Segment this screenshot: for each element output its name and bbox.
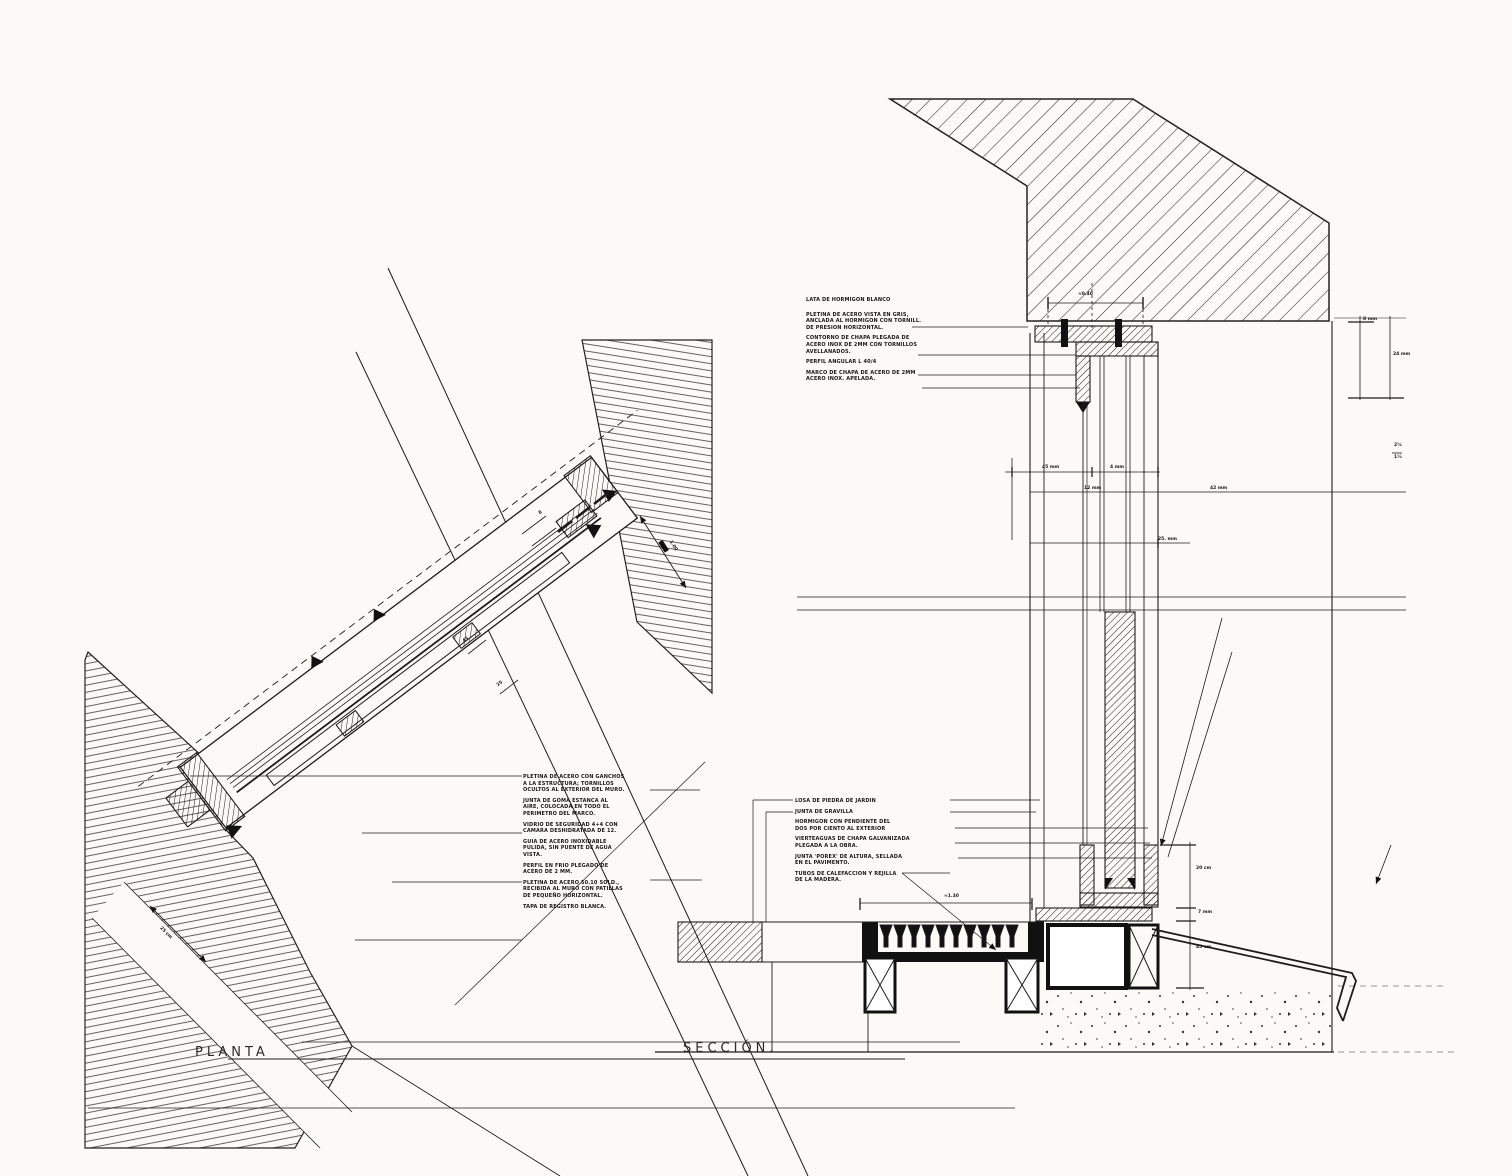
annotation-line: GUIA DE ACERO INOXIDABLE (523, 839, 658, 846)
annotation-line: PERIMETRO DEL MARCO. (523, 811, 658, 818)
annotation-line: EN EL PAVIMENTO. (795, 860, 953, 867)
section-concrete-base (1040, 988, 1332, 1052)
annotation-line: VISTA. (523, 852, 658, 859)
dim-label-sill-45: 45 cm (1196, 945, 1211, 950)
dim-label-right-a: 8 mm (1363, 317, 1377, 322)
dim-label-fraction-top: 2½ (1394, 443, 1402, 448)
annotation-block-plan-notes: PLETINA DE ACERO CON GANCHOSA LA ESTRUCT… (523, 774, 658, 910)
annotation-line: AIRE, COLOCADA EN TODO EL (523, 804, 658, 811)
dim-label-25: 25. mm (1158, 537, 1177, 542)
annotation-line: JUNTA DE GRAVILLA (795, 809, 953, 816)
annotation-line: TAPA DE REGISTRO BLANCA. (523, 904, 658, 911)
drawing-canvas (0, 0, 1512, 1176)
planta-title: PLANTA (195, 1045, 269, 1060)
section-sill-base (1048, 925, 1158, 988)
annotation-line: PERFIL ANGULAR L 40/4 (806, 359, 926, 366)
annotation-line: DOS POR CIENTO AL EXTERIOR (795, 826, 953, 833)
plan-wall-face-extension (352, 1046, 560, 1176)
seccion-drawing (655, 99, 1458, 1052)
dim-label-top-width: ≈0.40 (1078, 292, 1093, 297)
annotation-line: VIDRIO DE SEGURIDAD 4+4 CON (523, 822, 658, 829)
section-floor-grille (678, 922, 1044, 1052)
dim-label-sill-7: 7 mm (1198, 910, 1212, 915)
annotation-line: PLETINA DE ACERO CON GANCHOS (523, 774, 658, 781)
section-window-frame (1030, 319, 1158, 922)
section-diagonal-leaders (1161, 618, 1391, 884)
annotation-line: ACERO INOX. APELADA. (806, 376, 926, 383)
annotation-line: JUNTA DE GOMA ESTANCA AL (523, 798, 658, 805)
annotation-line: HORMIGON CON PENDIENTE DEL (795, 819, 953, 826)
annotation-line: PLETINA DE ACERO VISTA EN GRIS, (806, 312, 926, 319)
annotation-line: LATA DE HORMIGON BLANCO (806, 297, 926, 304)
annotation-line: TUBOS DE CALEFACCION Y REJILLA (795, 871, 953, 878)
annotation-line: CONTORNO DE CHAPA PLEGADA DE (806, 335, 926, 342)
dim-label-45: 45 mm (1042, 465, 1059, 470)
dim-label-grille-width: ≈1.30 (944, 894, 959, 899)
annotation-line: DE PRESION HORIZONTAL. (806, 325, 926, 332)
annotation-line: ACERO DE 2 MM. (523, 869, 658, 876)
annotation-line: PERFIL EN FRIO PLEGADO DE (523, 863, 658, 870)
dim-label-12: 12 mm (1084, 486, 1101, 491)
architectural-drawing-sheet: PLANTA SECCIÓN. PLETINA DE ACERO CON GAN… (0, 0, 1512, 1176)
seccion-title: SECCIÓN. (683, 1041, 778, 1056)
annotation-line: PLETINA DE ACERO 50.10 SOLD., (523, 880, 658, 887)
annotation-line: RECIBIDA AL MURO CON PATILLAS (523, 886, 658, 893)
annotation-line: MARCO DE CHAPA DE ACERO DE 2MM (806, 370, 926, 377)
annotation-line: CAMARA DESHIDRATADA DE 12. (523, 828, 658, 835)
dim-label-sill-20: 20 cm (1196, 866, 1211, 871)
annotation-line: JUNTA 'POREX' DE ALTURA, SELLADA (795, 854, 953, 861)
annotation-line: ACERO INOX DE 2MM CON TORNILLOS (806, 342, 926, 349)
dim-label-fraction-bottom: 1½ (1394, 455, 1402, 460)
annotation-line: DE PEQUEÑO HORIZONTAL. (523, 893, 658, 900)
section-concrete-mass (890, 99, 1329, 321)
dim-label-4: 4 mm (1110, 465, 1124, 470)
annotation-line: A LA ESTRUCTURA; TORNILLOS (523, 781, 658, 788)
annotation-line: ANCLADA AL HORMIGON CON TORNILL. (806, 318, 926, 325)
annotation-line: VIERTEAGUAS DE CHAPA GALVANIZADA (795, 836, 953, 843)
annotation-block-section-head-notes: LATA DE HORMIGON BLANCOPLETINA DE ACERO … (806, 297, 926, 383)
annotation-line: PLEGADA A LA OBRA. (795, 843, 953, 850)
dim-label-42: 42 mm (1210, 486, 1227, 491)
dim-label-right-b: 24 mm (1393, 352, 1410, 357)
annotation-line: AVELLANADOS. (806, 349, 926, 356)
annotation-line: PULIDA, SIN PUENTE DE AGUA (523, 845, 658, 852)
planta-drawing (85, 268, 1015, 1176)
annotation-line: LOSA DE PIEDRA DE JARDIN (795, 798, 953, 805)
annotation-line: OCULTOS AL EXTERIOR DEL MURO. (523, 787, 658, 794)
annotation-block-section-sill-notes: LOSA DE PIEDRA DE JARDINJUNTA DE GRAVILL… (795, 798, 953, 884)
annotation-line: DE LA MADERA. (795, 877, 953, 884)
